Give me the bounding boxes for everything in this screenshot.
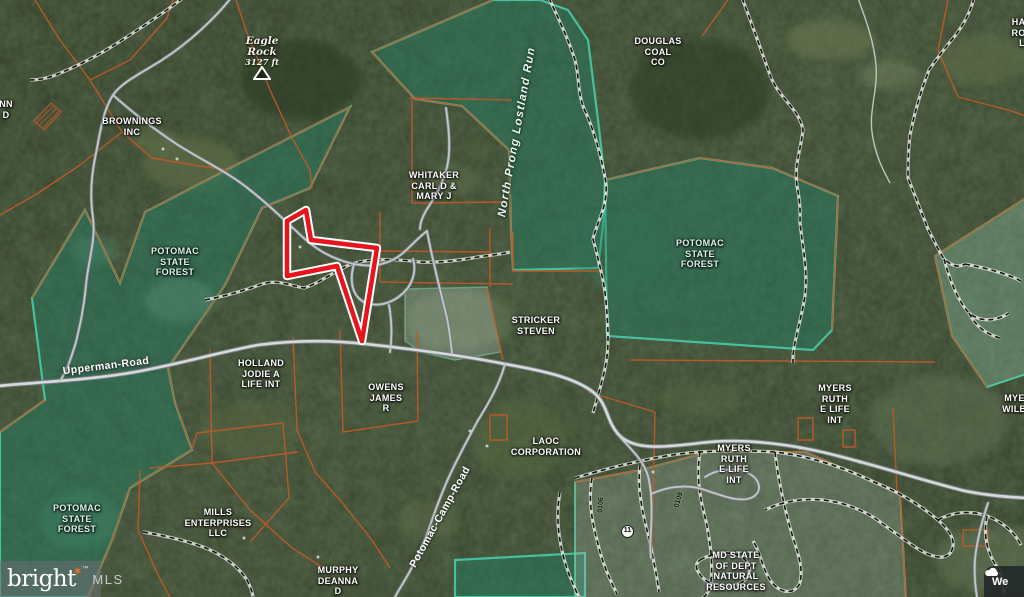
trademark-symbol: ™ bbox=[82, 566, 88, 572]
brand-logo-text: bright bbox=[7, 566, 76, 592]
weather-button[interactable]: We bbox=[984, 566, 1024, 597]
brand-org-text: MLS bbox=[92, 572, 123, 587]
map-canvas[interactable]: BROWNINGS INCWHITAKER CARL D & MARY JDOU… bbox=[0, 0, 1024, 597]
cloud-icon bbox=[984, 566, 1000, 578]
brand-watermark: bright✱™MLS bbox=[0, 561, 101, 597]
brand-star-icon: ✱ bbox=[74, 566, 82, 577]
map-graphics bbox=[0, 0, 1024, 597]
